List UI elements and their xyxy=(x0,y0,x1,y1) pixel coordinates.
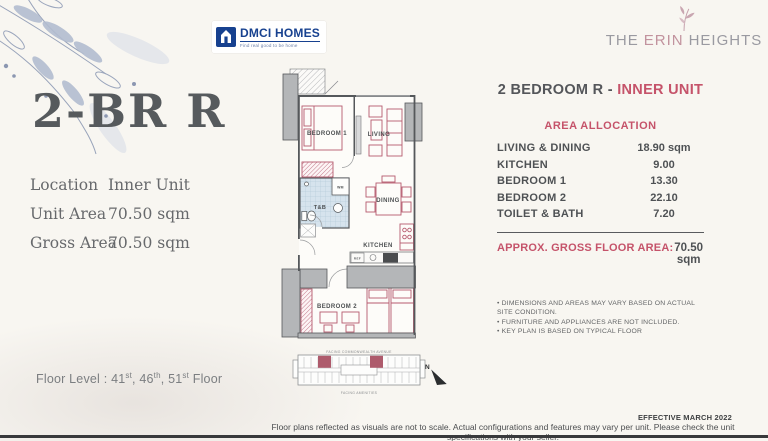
wardrobe-1 xyxy=(302,162,333,177)
disclaimer-text: Floor plans reflected as visuals are not… xyxy=(245,422,761,441)
floor-level-prefix: Floor Level : xyxy=(36,372,111,386)
room-label-dining: DINING xyxy=(376,198,399,204)
bottom-divider-line xyxy=(0,435,768,438)
allocation-table: LIVING & DINING 18.90 sqm KITCHEN 9.00 B… xyxy=(497,142,704,225)
note-item: • DIMENSIONS AND AREAS MAY VARY BASED ON… xyxy=(497,299,704,318)
floor-level-suffix: Floor xyxy=(193,372,222,386)
panel-title-main: 2 BEDROOM R - xyxy=(498,82,617,98)
allocation-label: TOILET & BATH xyxy=(497,208,624,220)
allocation-value: 22.10 xyxy=(624,192,704,204)
gross-floor-area-row: APPROX. GROSS FLOOR AREA: 70.50 sqm xyxy=(497,242,704,266)
allocation-value: 13.30 xyxy=(624,175,704,187)
detail-row-gross-area: Gross Area 70.50 sqm xyxy=(30,234,190,252)
allocation-label: BEDROOM 1 xyxy=(497,175,624,187)
notes: • DIMENSIONS AND AREAS MAY VARY BASED ON… xyxy=(497,299,704,337)
detail-value: Inner Unit xyxy=(108,176,190,194)
north-arrow: N xyxy=(425,364,447,385)
unit-title: 2-BR R xyxy=(32,84,226,138)
keyplan-bottom-label: FACING AMENITIES xyxy=(341,391,378,395)
detail-label: Location xyxy=(30,176,94,194)
allocation-row: KITCHEN 9.00 xyxy=(497,159,704,176)
room-label-kitchen: KITCHEN xyxy=(363,243,392,249)
allocation-value: 9.00 xyxy=(624,159,704,171)
north-label: N xyxy=(425,364,430,371)
dmci-logo-text: DMCI HOMES Find real good to be home xyxy=(240,27,320,48)
divider xyxy=(497,232,704,233)
tv-console xyxy=(356,116,361,154)
detail-row-unit-area: Unit Area 70.50 sqm xyxy=(30,205,190,223)
floor-level: Floor Level : 41st, 46th, 51st Floor xyxy=(36,371,222,386)
note-item: • KEY PLAN IS BASED ON TYPICAL FLOOR xyxy=(497,327,704,337)
gross-floor-area-label: APPROX. GROSS FLOOR AREA: xyxy=(497,242,673,254)
room-label-bedroom2: BEDROOM 2 xyxy=(317,304,357,310)
allocation-value: 7.20 xyxy=(624,208,704,220)
effective-date: EFFECTIVE MARCH 2022 xyxy=(638,413,732,422)
dmci-emblem-icon xyxy=(216,27,236,47)
floor-plan: BEDROOM 1 LIVING T&B WM DINING KITCHEN R… xyxy=(270,56,446,356)
room-label-tb: T&B xyxy=(314,205,327,211)
floor-level-num: 41 xyxy=(111,372,125,386)
key-plan: FACING COMMONWEALTH AVENUE FACING AMENIT… xyxy=(288,346,452,402)
stove xyxy=(383,253,398,263)
room-label-wm: WM xyxy=(337,186,344,190)
dmci-logo: DMCI HOMES Find real good to be home xyxy=(212,21,326,53)
note-item: • FURNITURE AND APPLIANCES ARE NOT INCLU… xyxy=(497,318,704,328)
unit-details: Location Inner Unit Unit Area 70.50 sqm … xyxy=(30,176,190,263)
dmci-tagline: Find real good to be home xyxy=(240,43,320,48)
allocation-row: BEDROOM 1 13.30 xyxy=(497,175,704,192)
room-label-ref: REF xyxy=(354,257,361,261)
panel-title: 2 BEDROOM R - INNER UNIT xyxy=(497,82,704,98)
floor-level-num: 46 xyxy=(139,372,153,386)
allocation-value: 18.90 sqm xyxy=(624,142,704,154)
allocation-label: LIVING & DINING xyxy=(497,142,624,154)
keyplan-building xyxy=(293,355,425,385)
keyplan-top-label: FACING COMMONWEALTH AVENUE xyxy=(326,350,392,354)
keyplan-highlight-unit xyxy=(370,356,383,368)
floor-level-sup: st xyxy=(125,371,132,380)
area-allocation-heading: AREA ALLOCATION xyxy=(497,120,704,132)
floor-level-num: 51 xyxy=(168,372,182,386)
erin-leaf-icon xyxy=(671,5,697,32)
panel-title-accent: INNER UNIT xyxy=(617,82,703,98)
erin-word-heights: HEIGHTS xyxy=(689,32,763,49)
floor-level-sep: , xyxy=(161,372,168,386)
room-label-bedroom1: BEDROOM 1 xyxy=(307,131,347,137)
detail-value: 70.50 sqm xyxy=(108,205,190,223)
allocation-row: LIVING & DINING 18.90 sqm xyxy=(497,142,704,159)
erin-heights-logo: THE ERIN HEIGHTS xyxy=(604,5,764,49)
brochure-page: DMCI HOMES Find real good to be home THE… xyxy=(0,0,768,441)
dmci-name: DMCI HOMES xyxy=(240,27,320,42)
wardrobe-2 xyxy=(301,289,312,333)
detail-label: Unit Area xyxy=(30,205,94,223)
erin-word-erin: ERIN xyxy=(644,32,684,49)
detail-value: 70.50 sqm xyxy=(108,234,190,252)
allocation-label: KITCHEN xyxy=(497,159,624,171)
allocation-label: BEDROOM 2 xyxy=(497,192,624,204)
erin-heights-wordmark: THE ERIN HEIGHTS xyxy=(604,32,764,49)
detail-label: Gross Area xyxy=(30,234,94,252)
gross-floor-area-value: 70.50 sqm xyxy=(673,242,704,266)
erin-word-the: THE xyxy=(606,32,639,49)
allocation-row: TOILET & BATH 7.20 xyxy=(497,208,704,225)
room-label-living: LIVING xyxy=(368,132,390,138)
area-allocation-panel: 2 BEDROOM R - INNER UNIT AREA ALLOCATION… xyxy=(497,82,704,337)
allocation-row: BEDROOM 2 22.10 xyxy=(497,192,704,209)
detail-row-location: Location Inner Unit xyxy=(30,176,190,194)
keyplan-highlight-unit xyxy=(318,356,331,368)
floor-level-sup: th xyxy=(154,371,161,380)
